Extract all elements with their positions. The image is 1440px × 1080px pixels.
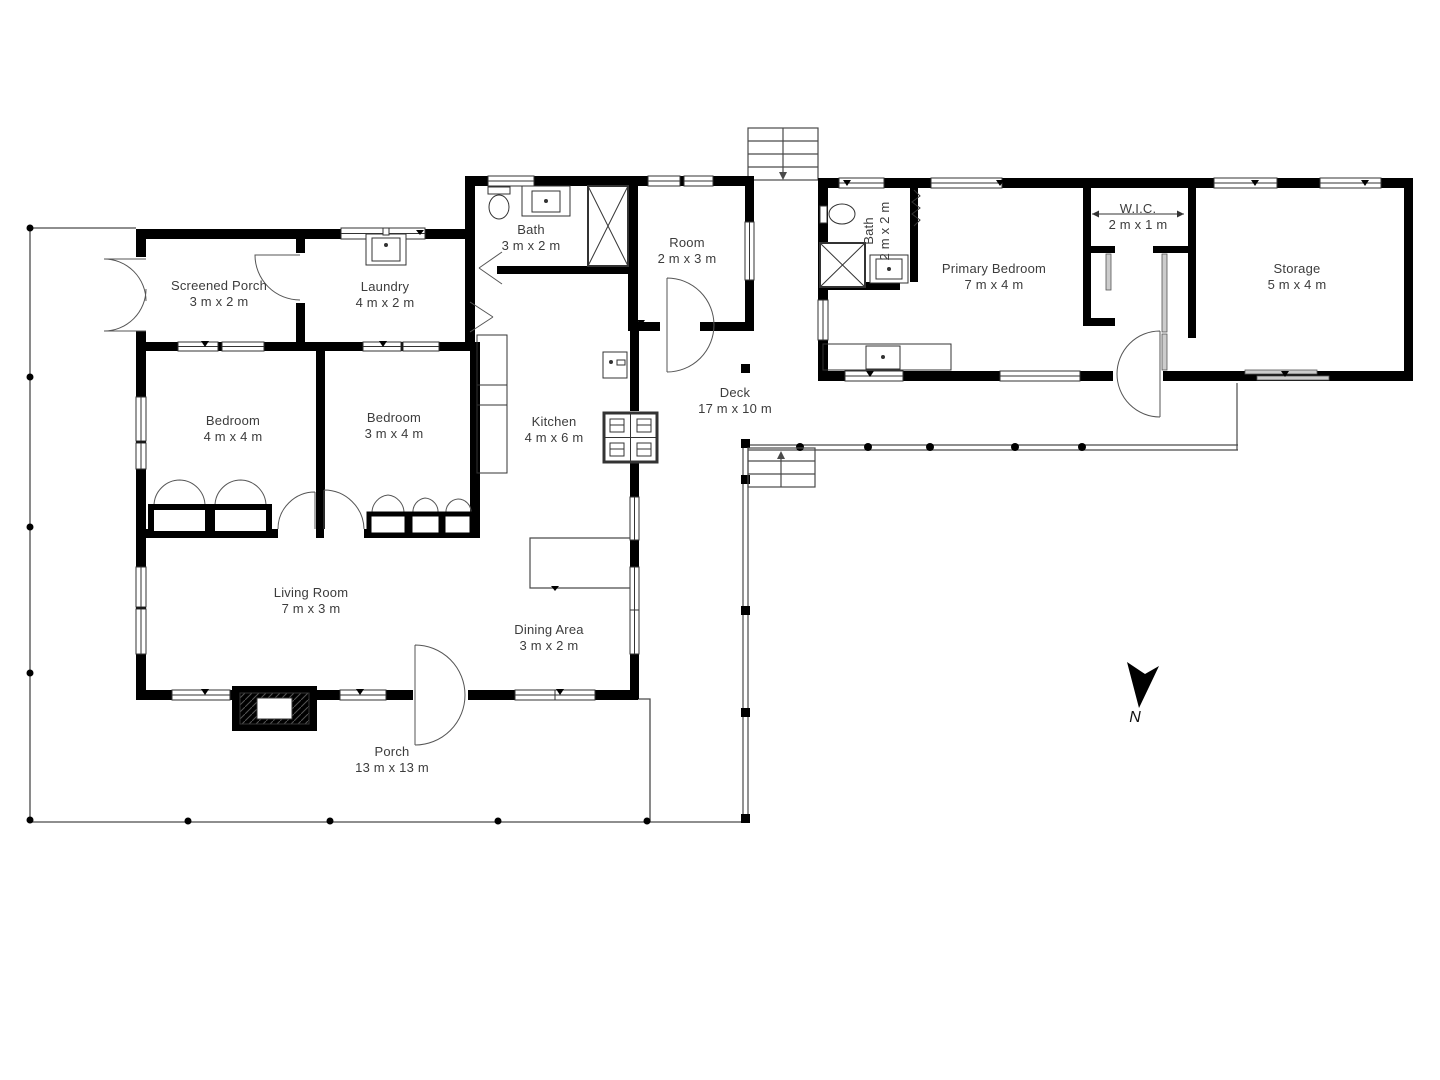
closet-box xyxy=(410,514,441,535)
room-dims: 13 m x 13 m xyxy=(355,760,429,776)
closet-box xyxy=(443,514,472,535)
door-openings xyxy=(136,253,1163,700)
deck-posts xyxy=(741,364,1086,823)
wall xyxy=(630,540,639,567)
room-name: Bedroom xyxy=(365,410,424,426)
wall xyxy=(465,176,475,351)
room-dims: 4 m x 4 m xyxy=(204,429,263,445)
room-label-bedroom-1: Bedroom 4 m x 4 m xyxy=(204,413,263,445)
closet-swing xyxy=(413,498,438,513)
closet-box xyxy=(212,507,269,534)
room-dims: 2 m x 3 m xyxy=(658,251,717,267)
closet-swing xyxy=(446,499,471,513)
door-swing xyxy=(324,490,364,529)
closet-panel xyxy=(1162,334,1167,370)
room-dims: 3 m x 2 m xyxy=(502,238,561,254)
room-dims: 3 m x 4 m xyxy=(365,426,424,442)
room-label-living-room: Living Room 7 m x 3 m xyxy=(274,585,348,617)
step-line xyxy=(530,538,630,588)
room-label-bath-main: Bath 3 m x 2 m xyxy=(502,222,561,254)
closet-panel xyxy=(1106,254,1111,290)
room-dims: 17 m x 10 m xyxy=(698,401,772,417)
room-dims: 7 m x 4 m xyxy=(942,277,1046,293)
room-name: W.I.C. xyxy=(1109,201,1168,217)
room-label-primary-bedroom: Primary Bedroom 7 m x 4 m xyxy=(942,261,1046,293)
closet-panel xyxy=(1162,254,1167,332)
entry-stairs-top xyxy=(748,128,818,180)
wall xyxy=(1083,188,1091,252)
room-label-wic: W.I.C. 2 m x 1 m xyxy=(1109,201,1168,233)
faucet xyxy=(545,200,548,203)
walls xyxy=(136,176,1413,700)
room-label-deck: Deck 17 m x 10 m xyxy=(698,385,772,417)
stairs-up-arrow xyxy=(777,451,785,459)
closet-box xyxy=(369,514,407,535)
room-name: Living Room xyxy=(274,585,348,601)
room-name: Laundry xyxy=(356,279,415,295)
stove xyxy=(604,413,657,462)
room-name: Deck xyxy=(698,385,772,401)
room-name: Screened Porch xyxy=(171,278,267,294)
room-label-bath-primary: Bath 2 m x 2 m xyxy=(861,202,893,261)
closet-swing xyxy=(372,495,404,513)
wall xyxy=(1083,246,1115,253)
north-label: N xyxy=(1129,709,1141,727)
room-dims: 2 m x 2 m xyxy=(877,202,893,261)
door-swing xyxy=(278,492,315,529)
room-dims: 3 m x 2 m xyxy=(514,638,583,654)
floor-plan-drawing xyxy=(0,0,1440,1080)
room-label-porch: Porch 13 m x 13 m xyxy=(355,744,429,776)
room-name: Bath xyxy=(861,202,877,261)
room-name: Bedroom xyxy=(204,413,263,429)
wall xyxy=(316,529,324,538)
room-name: Primary Bedroom xyxy=(942,261,1046,277)
wall xyxy=(1083,253,1091,325)
floor-plan-page: Screened Porch 3 m x 2 m Laundry 4 m x 2… xyxy=(0,0,1440,1080)
wall xyxy=(1153,246,1189,253)
room-label-dining-area: Dining Area 3 m x 2 m xyxy=(514,622,583,654)
wall xyxy=(497,266,638,274)
room-dims: 2 m x 1 m xyxy=(1109,217,1168,233)
room-dims: 5 m x 4 m xyxy=(1268,277,1327,293)
deck-stairs xyxy=(748,448,815,487)
room-dims: 7 m x 3 m xyxy=(274,601,348,617)
room-dims: 3 m x 2 m xyxy=(171,294,267,310)
porch-posts xyxy=(27,225,651,825)
sliding-door xyxy=(1257,376,1329,380)
toilet-tank xyxy=(820,206,827,223)
wall xyxy=(628,176,638,331)
wall xyxy=(1083,318,1115,326)
room-dims: 4 m x 6 m xyxy=(525,430,584,446)
wall xyxy=(630,331,639,411)
room-label-screened-porch: Screened Porch 3 m x 2 m xyxy=(171,278,267,310)
toilet-tank xyxy=(488,187,510,194)
fireplace xyxy=(232,686,317,731)
room-name: Kitchen xyxy=(525,414,584,430)
room-label-laundry: Laundry 4 m x 2 m xyxy=(356,279,415,311)
wall xyxy=(1188,178,1196,338)
wall xyxy=(1404,178,1413,381)
north-arrow-icon xyxy=(1127,662,1159,708)
room-label-kitchen: Kitchen 4 m x 6 m xyxy=(525,414,584,446)
kitchen-counter xyxy=(477,335,507,473)
room-label-room: Room 2 m x 3 m xyxy=(658,235,717,267)
wall xyxy=(630,462,639,497)
sliding-door xyxy=(1245,370,1317,374)
stairs-down-arrow xyxy=(779,172,787,180)
closet-swing xyxy=(215,480,266,506)
room-name: Storage xyxy=(1268,261,1327,277)
closet-box xyxy=(151,507,208,534)
toilet xyxy=(829,204,855,224)
room-label-storage: Storage 5 m x 4 m xyxy=(1268,261,1327,293)
room-name: Dining Area xyxy=(514,622,583,638)
north-arrow xyxy=(1127,662,1159,708)
deck-outline xyxy=(743,383,1238,822)
room-dims: 4 m x 2 m xyxy=(356,295,415,311)
closet-swing xyxy=(154,480,205,506)
room-label-bedroom-2: Bedroom 3 m x 4 m xyxy=(365,410,424,442)
room-name: Room xyxy=(658,235,717,251)
toilet xyxy=(489,195,509,219)
room-name: Bath xyxy=(502,222,561,238)
wall xyxy=(470,342,480,538)
room-name: Porch xyxy=(355,744,429,760)
